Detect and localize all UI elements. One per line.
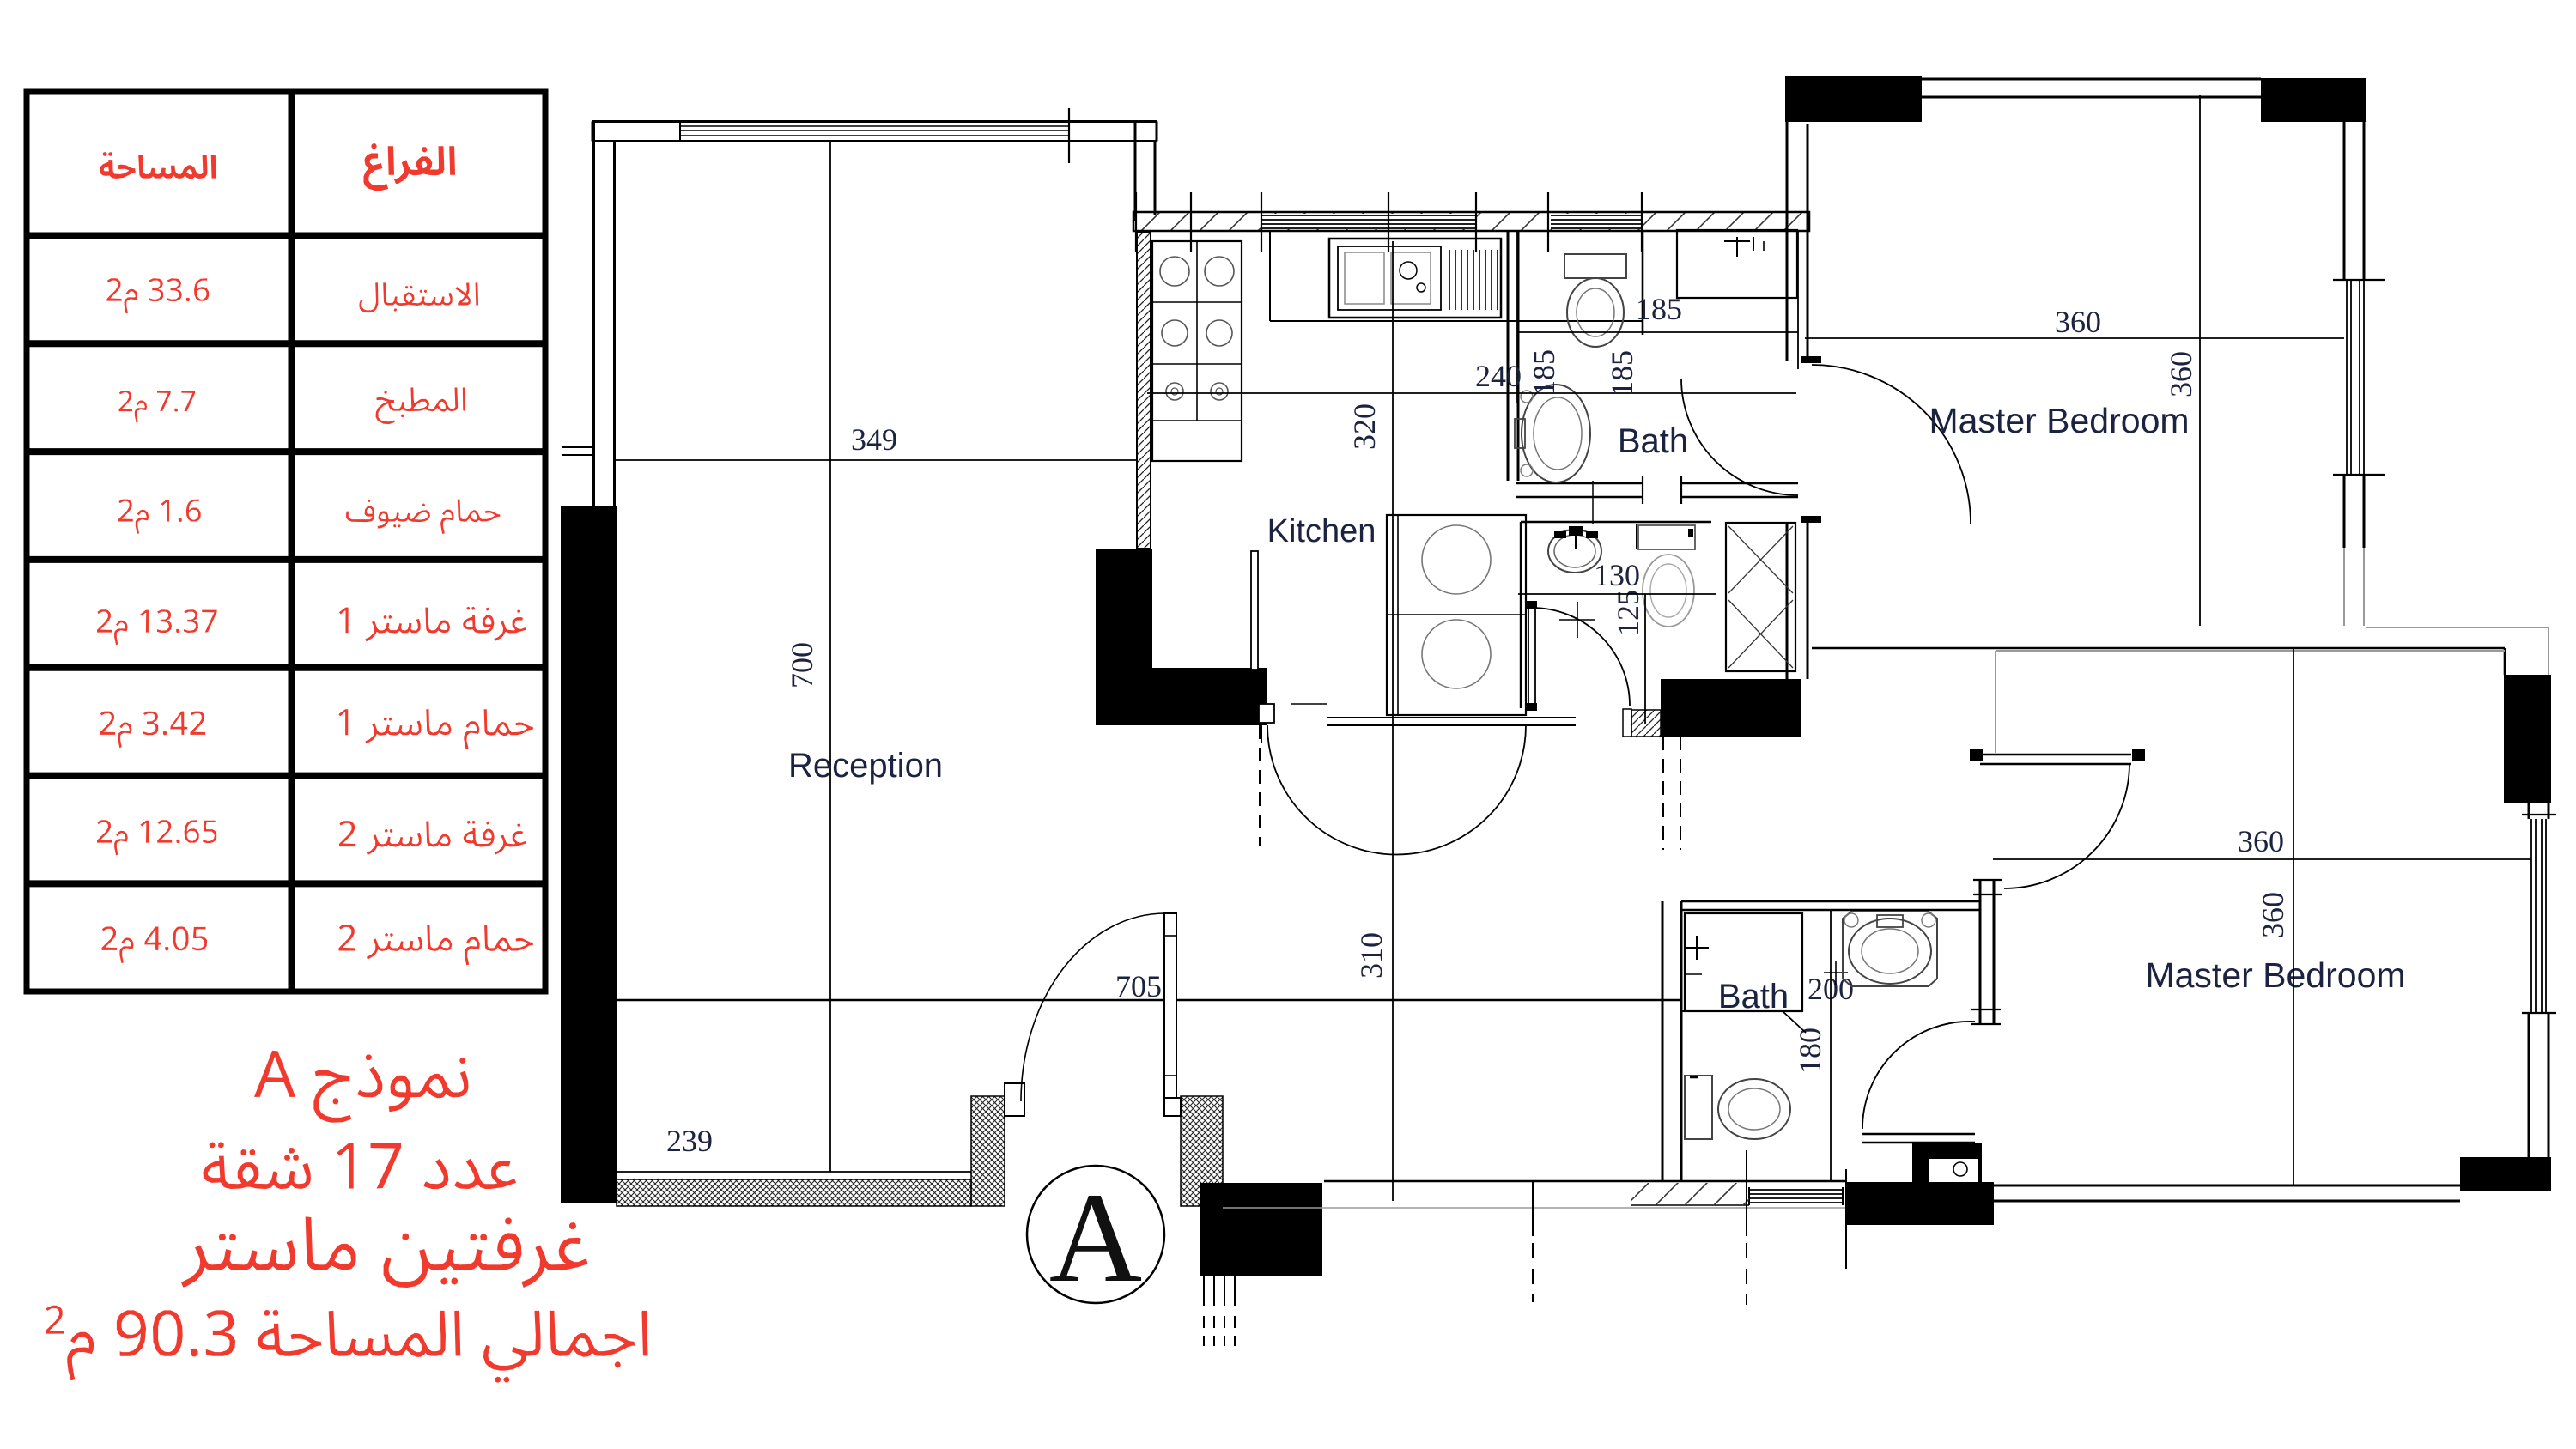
svg-text:700: 700 — [785, 642, 819, 688]
svg-text:360: 360 — [2055, 305, 2101, 339]
svg-text:240: 240 — [1475, 359, 1522, 393]
svg-text:310: 310 — [1354, 932, 1388, 979]
svg-text:Master Bedroom: Master Bedroom — [2145, 955, 2405, 995]
svg-text:A: A — [1049, 1167, 1142, 1309]
svg-text:185: 185 — [1636, 292, 1682, 326]
svg-text:239: 239 — [666, 1124, 713, 1158]
svg-text:705: 705 — [1115, 969, 1162, 1003]
svg-text:Reception: Reception — [788, 747, 943, 785]
svg-text:Bath: Bath — [1618, 422, 1688, 460]
svg-text:Kitchen: Kitchen — [1267, 513, 1376, 549]
svg-text:360: 360 — [2238, 824, 2284, 858]
svg-text:360: 360 — [2164, 351, 2198, 397]
svg-text:349: 349 — [851, 422, 897, 457]
svg-text:125: 125 — [1611, 590, 1645, 636]
svg-text:185: 185 — [1527, 349, 1561, 396]
svg-text:185: 185 — [1605, 350, 1639, 397]
svg-text:Master Bedroom: Master Bedroom — [1929, 401, 2189, 440]
svg-text:180: 180 — [1793, 1028, 1827, 1074]
svg-text:Bath: Bath — [1718, 978, 1789, 1016]
svg-text:130: 130 — [1594, 558, 1640, 592]
svg-text:320: 320 — [1347, 403, 1382, 450]
svg-text:360: 360 — [2256, 892, 2290, 938]
